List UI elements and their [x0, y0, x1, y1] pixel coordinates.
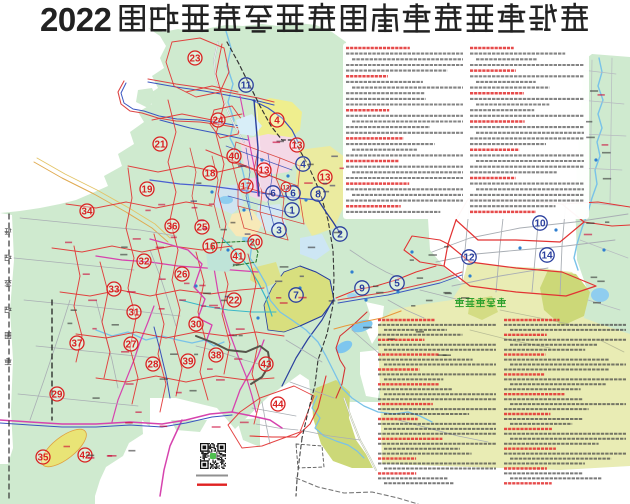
- svg-text:4: 4: [300, 160, 306, 171]
- svg-text:20: 20: [250, 237, 261, 248]
- svg-text:13: 13: [259, 165, 270, 176]
- svg-text:35: 35: [38, 452, 49, 463]
- svg-text:14: 14: [541, 251, 553, 262]
- svg-text:36: 36: [167, 221, 178, 232]
- svg-text:19: 19: [142, 184, 153, 195]
- svg-text:2: 2: [337, 230, 343, 241]
- svg-text:38: 38: [211, 350, 222, 361]
- svg-text:10: 10: [534, 219, 546, 230]
- svg-text:23: 23: [190, 53, 201, 64]
- svg-text:27: 27: [126, 339, 137, 350]
- svg-text:24: 24: [213, 115, 224, 126]
- svg-text:29: 29: [52, 389, 63, 400]
- svg-text:39: 39: [183, 356, 194, 367]
- svg-text:21: 21: [155, 139, 166, 150]
- svg-text:18: 18: [205, 168, 216, 179]
- svg-text:8: 8: [315, 190, 321, 201]
- svg-text:43: 43: [261, 359, 272, 370]
- svg-text:30: 30: [191, 319, 202, 330]
- svg-text:1: 1: [289, 206, 295, 217]
- svg-text:9: 9: [359, 284, 365, 295]
- svg-text:11: 11: [241, 81, 252, 92]
- svg-text:28: 28: [148, 359, 159, 370]
- svg-text:5: 5: [394, 279, 400, 290]
- svg-text:33: 33: [109, 284, 120, 295]
- svg-text:7: 7: [293, 291, 299, 302]
- svg-text:22: 22: [229, 295, 240, 306]
- svg-text:12: 12: [463, 253, 475, 264]
- svg-text:37: 37: [72, 338, 83, 349]
- svg-text:6: 6: [290, 189, 296, 200]
- svg-text:2022: 2022: [40, 1, 112, 38]
- svg-text:44: 44: [273, 399, 284, 410]
- svg-text:13: 13: [282, 184, 290, 191]
- svg-text:13: 13: [320, 172, 331, 183]
- svg-text:13: 13: [292, 140, 303, 151]
- svg-text:26: 26: [177, 269, 188, 280]
- svg-text:41: 41: [233, 251, 244, 262]
- svg-text:4: 4: [274, 115, 280, 126]
- svg-text:31: 31: [129, 307, 140, 318]
- svg-text:16: 16: [205, 241, 216, 252]
- svg-text:17: 17: [241, 181, 252, 192]
- svg-text:34: 34: [82, 206, 93, 217]
- svg-text:32: 32: [139, 256, 150, 267]
- svg-text:40: 40: [229, 151, 240, 162]
- svg-text:3: 3: [276, 226, 282, 237]
